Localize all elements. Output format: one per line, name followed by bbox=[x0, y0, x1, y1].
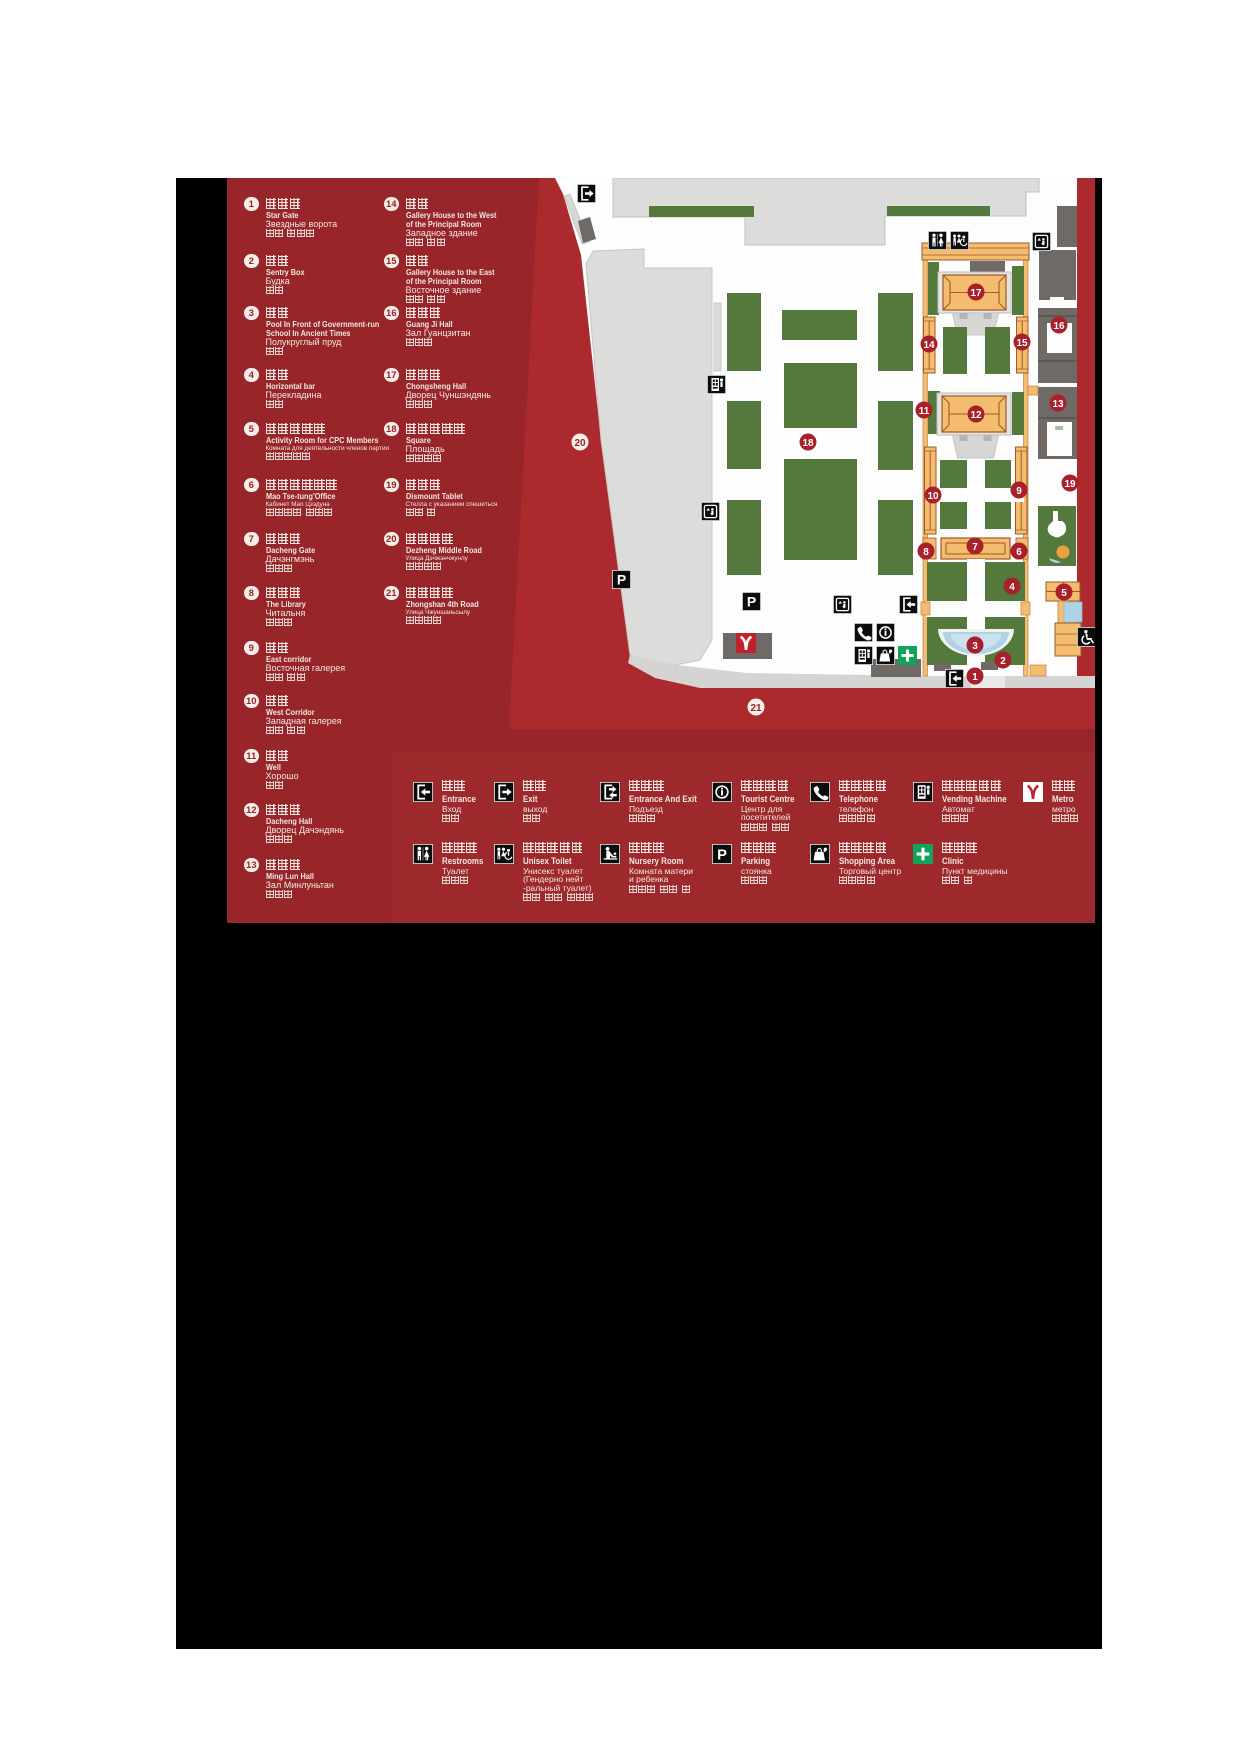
svg-text:8: 8 bbox=[923, 547, 929, 558]
svg-text:18: 18 bbox=[802, 438, 814, 449]
svg-text:11: 11 bbox=[919, 406, 930, 417]
svg-text:5: 5 bbox=[1061, 588, 1067, 599]
svg-text:2: 2 bbox=[1000, 656, 1006, 667]
svg-text:20: 20 bbox=[574, 438, 586, 449]
svg-text:1: 1 bbox=[972, 672, 978, 683]
svg-text:P: P bbox=[717, 847, 727, 863]
svg-text:9: 9 bbox=[1016, 486, 1022, 497]
svg-text:13: 13 bbox=[1052, 399, 1064, 410]
svg-text:7: 7 bbox=[972, 542, 978, 553]
svg-text:12: 12 bbox=[970, 410, 982, 421]
svg-text:17: 17 bbox=[970, 288, 982, 299]
svg-text:P: P bbox=[617, 572, 626, 588]
svg-text:19: 19 bbox=[1064, 479, 1076, 490]
svg-text:4: 4 bbox=[1009, 582, 1015, 593]
svg-text:14: 14 bbox=[923, 340, 935, 351]
svg-text:16: 16 bbox=[1053, 321, 1065, 332]
svg-text:P: P bbox=[747, 594, 756, 610]
svg-text:3: 3 bbox=[972, 641, 978, 652]
svg-text:6: 6 bbox=[1016, 547, 1022, 558]
svg-text:15: 15 bbox=[1016, 338, 1028, 349]
svg-text:10: 10 bbox=[927, 491, 939, 502]
svg-text:21: 21 bbox=[750, 703, 762, 714]
